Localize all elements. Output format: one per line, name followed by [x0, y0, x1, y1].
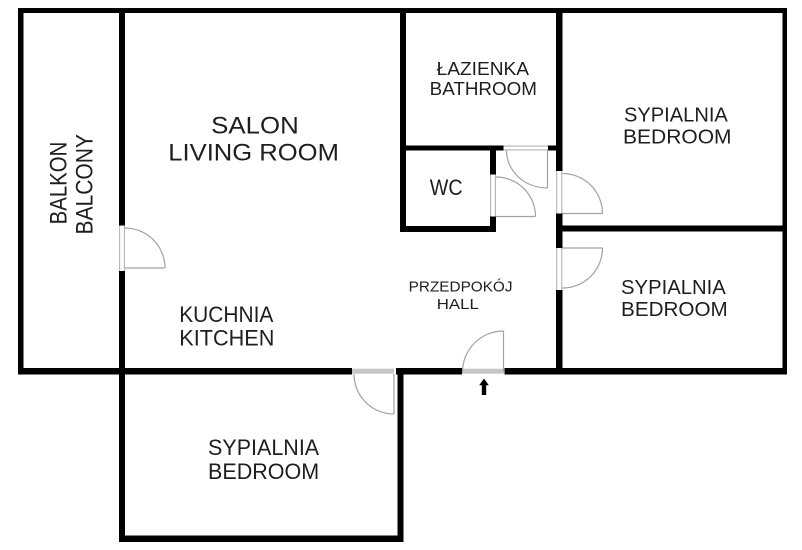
svg-text:PRZEDPOKÓJ: PRZEDPOKÓJ	[409, 278, 513, 295]
svg-text:BALKON: BALKON	[46, 142, 73, 225]
svg-text:BEDROOM: BEDROOM	[208, 459, 319, 484]
svg-text:HALL: HALL	[437, 297, 479, 313]
svg-text:WC: WC	[430, 175, 463, 200]
svg-text:BALCONY: BALCONY	[72, 134, 99, 235]
svg-text:BEDROOM: BEDROOM	[621, 299, 728, 321]
svg-text:SYPIALNIA: SYPIALNIA	[208, 435, 319, 460]
svg-text:KUCHNIA: KUCHNIA	[179, 302, 274, 327]
svg-text:SALON: SALON	[211, 113, 299, 140]
svg-text:BEDROOM: BEDROOM	[623, 127, 732, 149]
svg-text:BATHROOM: BATHROOM	[430, 79, 537, 99]
svg-text:SYPIALNIA: SYPIALNIA	[621, 277, 726, 299]
svg-text:LIVING ROOM: LIVING ROOM	[168, 139, 339, 166]
svg-text:SYPIALNIA: SYPIALNIA	[624, 104, 728, 126]
svg-text:KITCHEN: KITCHEN	[179, 325, 274, 350]
svg-text:ŁAZIENKA: ŁAZIENKA	[437, 59, 530, 79]
